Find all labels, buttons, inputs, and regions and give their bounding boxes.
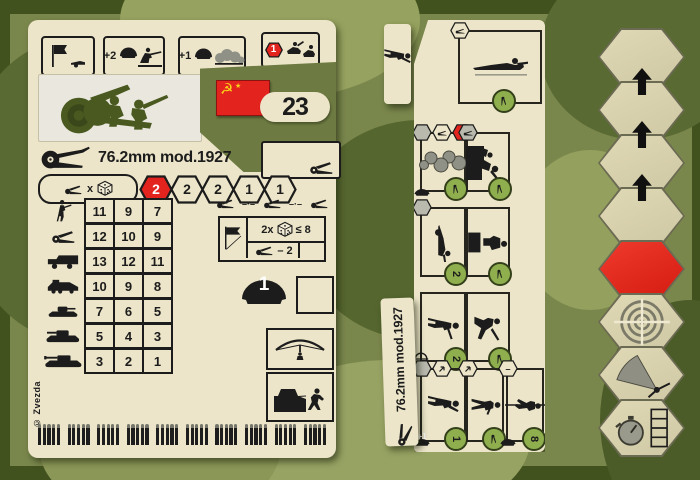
order-hex-target xyxy=(598,293,685,351)
morale-multiplier: 2x xyxy=(261,224,273,236)
ammo-bullet xyxy=(259,424,262,445)
order-panel xyxy=(466,132,510,192)
arrow-icon xyxy=(458,360,478,377)
ammo-bullet xyxy=(57,424,60,445)
tank-assault-icon xyxy=(272,380,328,414)
copyright: © Zvezda xyxy=(32,368,42,428)
range-cell: 3 xyxy=(84,348,115,374)
artillery-silhouette-icon xyxy=(38,146,92,170)
gray-hex xyxy=(412,199,432,216)
limber-track: –·––·– xyxy=(214,198,330,209)
ammo-bullet xyxy=(107,424,110,445)
order-hex-fire-arc xyxy=(598,346,685,404)
attack-hex: 2 xyxy=(170,175,204,204)
soldier-climbing-figure xyxy=(490,388,560,422)
hammer-sickle-icon: ☭ xyxy=(220,81,233,99)
crew-helmet-badge: 1 xyxy=(238,272,290,312)
artillery-gun-icon xyxy=(261,198,283,209)
artillery-gun-icon xyxy=(498,95,510,107)
order-card[interactable]: 22+11–8 xyxy=(414,20,545,452)
artillery-gun-icon xyxy=(306,160,336,175)
ammo-bullet xyxy=(141,424,144,445)
digging-soldiers-icon xyxy=(285,39,317,61)
order-hex-column xyxy=(598,28,686,458)
ammo-bullet xyxy=(279,424,282,445)
order-cost-circle xyxy=(492,89,516,113)
order-cost-circle: 2 xyxy=(444,262,468,286)
crew-obstacle-figure xyxy=(460,142,516,182)
range-cell: 11 xyxy=(84,198,115,224)
ammo-bullet xyxy=(72,424,75,445)
ammo-bullet xyxy=(264,424,267,445)
artillery-gun-icon xyxy=(494,268,506,280)
order-card-strip[interactable] xyxy=(384,24,411,104)
range-cell: 5 xyxy=(142,298,173,324)
light-tank-icon xyxy=(40,304,86,319)
outline-hex: – xyxy=(498,360,518,377)
morale-roll: 2x ≤ 8 xyxy=(248,218,324,241)
ammo-bullet xyxy=(304,424,307,445)
order-panel-hexes: – xyxy=(498,360,518,377)
range-table-row: 131211 xyxy=(40,250,173,272)
order-panel-hexes xyxy=(458,360,478,377)
arrow-icon xyxy=(432,360,452,377)
range-cell: 8 xyxy=(142,273,173,299)
morale-modifier: – 2 xyxy=(277,245,292,257)
range-cell: 2 xyxy=(113,348,144,374)
ammo-bullet xyxy=(82,424,85,445)
soldier-rifle-icon xyxy=(380,46,414,68)
order-cost-value: 2 xyxy=(450,271,462,277)
range-cell: 12 xyxy=(113,248,144,274)
ammo-bullet xyxy=(229,424,232,445)
points-value: 23 xyxy=(260,92,330,122)
order-cost-circle: 8 xyxy=(522,427,546,451)
range-cell: 11 xyxy=(142,248,173,274)
unit-title-vertical: 76.2mm mod.1927 xyxy=(390,302,408,418)
order-panel-hexes xyxy=(458,124,478,141)
range-cell: 3 xyxy=(142,323,173,349)
ammo-group xyxy=(127,424,149,445)
armored-car-icon xyxy=(40,278,86,294)
ammo-bullet xyxy=(309,424,312,445)
ammo-bullet xyxy=(205,424,208,445)
limber-separator: –·– xyxy=(289,199,302,209)
ammo-bullet xyxy=(289,424,292,445)
order-panels: 22+11–8 xyxy=(414,20,545,452)
truck-icon xyxy=(40,252,86,270)
outline-hex xyxy=(432,360,452,377)
ammo-bullet xyxy=(200,424,203,445)
entrench-hex-value: 1 xyxy=(265,42,283,58)
crew-bonus-label: +2 xyxy=(104,50,117,62)
ability-box-crew-bonus: +2 xyxy=(103,36,165,76)
order-panel-hexes xyxy=(412,360,452,377)
glider-box xyxy=(266,328,334,370)
ammo-group xyxy=(97,424,119,445)
ammo-bullet xyxy=(131,424,134,445)
ammo-bullet xyxy=(86,424,89,445)
artillery-gun-icon xyxy=(450,183,462,195)
ammo-bullet xyxy=(245,424,248,445)
loader-crate-figure xyxy=(455,222,521,262)
ability-box-entrench: 1 xyxy=(261,32,320,68)
ammo-bullet xyxy=(225,424,228,445)
ammo-bullet xyxy=(161,424,164,445)
ammo-bullet xyxy=(234,424,237,445)
range-table-row: 12109 xyxy=(40,225,173,247)
ammo-group xyxy=(186,424,208,445)
artillery-icon xyxy=(40,229,86,244)
attack-hex-value: 2 xyxy=(170,175,204,204)
range-cell: 7 xyxy=(142,198,173,224)
target-hex-face xyxy=(600,295,683,349)
ammo-bullet xyxy=(156,424,159,445)
gun-and-crew-model xyxy=(45,77,195,139)
order-card-title-strip: 76.2mm mod.1927 xyxy=(380,297,418,446)
artillery-gun-icon xyxy=(62,184,84,195)
range-table-row: 1098 xyxy=(40,275,173,297)
range-cell: 6 xyxy=(113,298,144,324)
order-cost-value: 1 xyxy=(450,436,462,442)
die-icon xyxy=(276,221,294,239)
entrench-hex: 1 xyxy=(265,42,283,58)
ammo-bullet xyxy=(111,424,114,445)
crew-value: 1 xyxy=(238,274,290,296)
order-cost-circle xyxy=(488,262,512,286)
ammo-bullet xyxy=(175,424,178,445)
ammo-bullet xyxy=(275,424,278,445)
ammo-bullet xyxy=(186,424,189,445)
minus-icon: – xyxy=(498,360,518,377)
die-icon xyxy=(96,180,114,198)
ammo-group xyxy=(156,424,178,445)
range-cell: 9 xyxy=(113,273,144,299)
move-arrow-icon xyxy=(631,174,653,201)
ammo-bullet xyxy=(284,424,287,445)
order-panel: –8 xyxy=(506,368,544,442)
order-panel-hexes xyxy=(412,199,432,216)
multiplier-label: x xyxy=(87,183,93,195)
ammo-group xyxy=(304,424,326,445)
order-hex-timer xyxy=(598,399,685,457)
ammo-bullet xyxy=(52,424,55,445)
ammo-bullet xyxy=(323,424,326,445)
helmet-badge xyxy=(413,184,431,197)
range-table-row: 543 xyxy=(40,325,173,347)
ammo-bullet xyxy=(166,424,169,445)
ammo-group xyxy=(68,424,90,445)
ammo-bullet xyxy=(195,424,198,445)
range-cell: 7 xyxy=(84,298,115,324)
ammo-group xyxy=(215,424,237,445)
ammo-bullet xyxy=(47,424,50,445)
ammo-bullet xyxy=(68,424,71,445)
ammo-bullet xyxy=(97,424,100,445)
order-panel xyxy=(466,207,510,277)
ammo-bullet xyxy=(145,424,148,445)
game-card-scan: +2 +1 1 6145 ☭ ★ 23 76.2mm xyxy=(0,0,700,480)
ammo-bullet xyxy=(313,424,316,445)
outline-hex xyxy=(432,124,452,141)
unit-title: 76.2mm mod.1927 xyxy=(98,149,231,167)
unit-photo xyxy=(38,74,202,142)
ammo-bullet xyxy=(116,424,119,445)
range-table-row: 765 xyxy=(40,300,173,322)
tank-assault-box xyxy=(266,372,334,422)
outline-hex xyxy=(458,360,478,377)
ammo-bullet xyxy=(215,424,218,445)
ammo-group xyxy=(245,424,267,445)
artillery-gun-icon xyxy=(494,183,506,195)
flag-icon xyxy=(223,223,243,253)
range-table: 1197121091312111098765543321 xyxy=(40,200,173,375)
infantry-icon xyxy=(40,199,86,223)
move-arrow-icon xyxy=(631,121,653,148)
range-cell: 12 xyxy=(84,223,115,249)
gray-hex xyxy=(412,124,432,141)
ammo-bullet xyxy=(77,424,80,445)
order-cost-circle xyxy=(488,177,512,201)
ammo-bullet xyxy=(102,424,105,445)
fire-arc-hex-face xyxy=(600,348,683,402)
artillery-gun-icon xyxy=(253,245,275,256)
smoke-bonus-label: +1 xyxy=(179,50,192,62)
ammo-group xyxy=(38,424,60,445)
unit-stat-card[interactable]: +2 +1 1 6145 ☭ ★ 23 76.2mm xyxy=(28,20,336,458)
artillery-gun-icon xyxy=(432,124,452,141)
timer-hex-face xyxy=(600,401,683,455)
order-cost-value: 8 xyxy=(528,436,540,442)
range-table-row: 1197 xyxy=(40,200,173,222)
alert-hex-face xyxy=(600,242,683,296)
soldier-digging-figure xyxy=(455,307,521,347)
gray-hex xyxy=(458,124,478,141)
ammo-track xyxy=(38,424,326,445)
move-arrow-icon xyxy=(631,68,653,95)
heavy-tank-icon xyxy=(40,353,86,369)
flag-gun-icon xyxy=(48,43,88,69)
range-cell: 9 xyxy=(142,223,173,249)
ammo-bullet xyxy=(254,424,257,445)
ammo-bullet xyxy=(293,424,296,445)
morale-condition: ≤ 8 xyxy=(296,224,311,236)
helmet-soldier-icon xyxy=(118,44,164,68)
range-cell: 5 xyxy=(84,323,115,349)
range-cell: 13 xyxy=(84,248,115,274)
medium-tank-icon xyxy=(40,328,86,344)
artillery-gun-icon xyxy=(458,124,478,141)
order-panel xyxy=(466,292,510,362)
ammo-bullet xyxy=(220,424,223,445)
limber-separator: –·– xyxy=(242,199,255,209)
ability-box-transport xyxy=(41,36,95,76)
ammo-bullet xyxy=(127,424,130,445)
artillery-gun-icon xyxy=(214,198,236,209)
ammo-bullet xyxy=(191,424,194,445)
range-cell: 4 xyxy=(113,323,144,349)
ammo-group xyxy=(275,424,297,445)
title-row: 76.2mm mod.1927 xyxy=(38,146,231,170)
range-table-row: 321 xyxy=(40,350,173,372)
flag-icon xyxy=(220,218,248,258)
ammo-bullet xyxy=(250,424,253,445)
order-hex-alert xyxy=(598,240,685,298)
ammo-bullet xyxy=(170,424,173,445)
ammo-bullet xyxy=(318,424,321,445)
range-cell: 9 xyxy=(113,198,144,224)
empty-order-box xyxy=(296,276,334,314)
ammo-bullet xyxy=(136,424,139,445)
range-cell: 10 xyxy=(84,273,115,299)
range-cell: 1 xyxy=(142,348,173,374)
order-cost-circle: 1 xyxy=(444,427,468,451)
range-cell: 10 xyxy=(113,223,144,249)
glider-icon xyxy=(273,336,327,362)
morale-box: 2x ≤ 8 – 2 xyxy=(218,216,326,262)
star-icon: ★ xyxy=(235,82,241,90)
order-panel xyxy=(458,30,542,104)
artillery-gun-icon xyxy=(308,198,330,209)
smoke-icon xyxy=(193,44,245,68)
ammo-bullet xyxy=(43,424,46,445)
ammo-bullet xyxy=(38,424,41,445)
helmet-badge xyxy=(499,434,517,447)
morale-modifier-row: – 2 xyxy=(248,241,298,258)
morale-empty-cell xyxy=(298,241,324,258)
